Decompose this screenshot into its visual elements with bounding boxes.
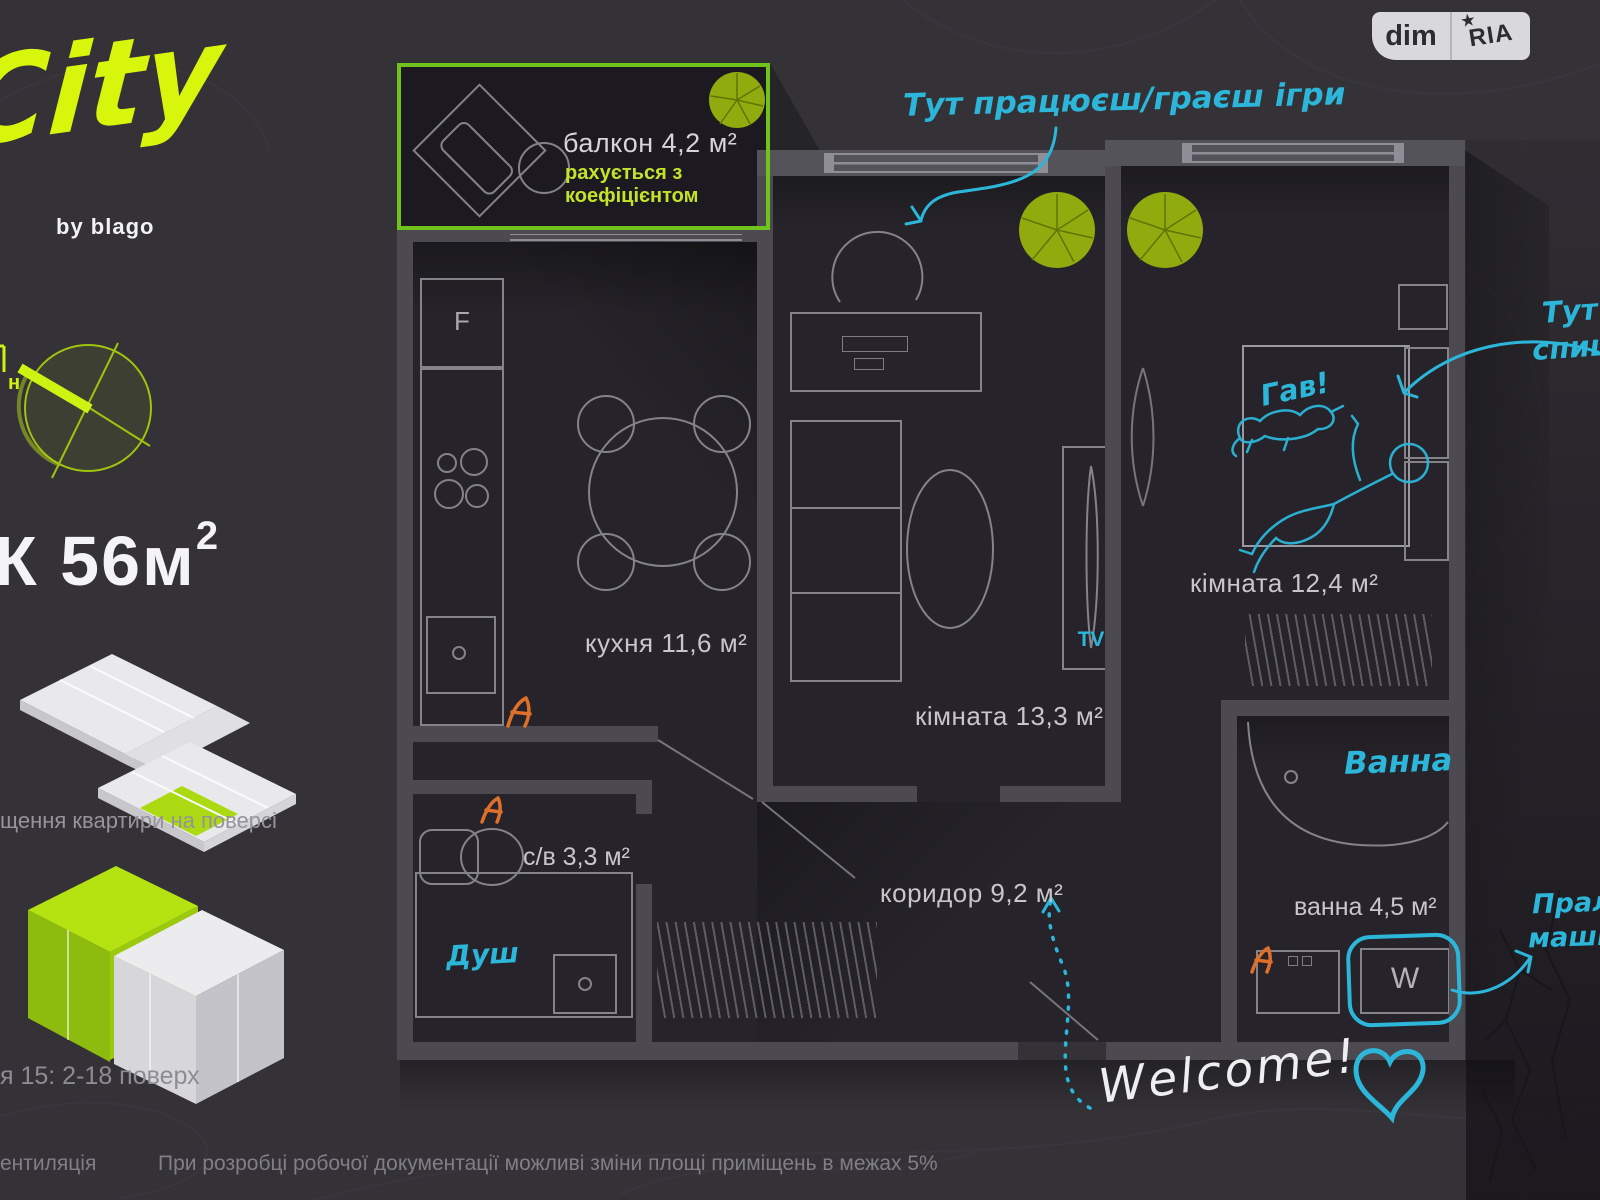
note-sleep-line2: спиш — [1531, 327, 1600, 367]
ventilation-marker — [482, 698, 1271, 972]
compass-north-label: н — [8, 372, 20, 395]
compass-icon — [0, 343, 151, 478]
note-washer-line2: маши — [1527, 920, 1600, 954]
plan-overlay — [0, 0, 1600, 1200]
toilet-bowl — [461, 829, 523, 885]
room-label-room1: кімната 13,3 м² — [915, 701, 1103, 732]
burner — [461, 449, 487, 475]
room-label-bath: ванна 4,5 м² — [1294, 893, 1437, 922]
balcony-label: балкон 4,2 м² — [563, 128, 737, 159]
room1-door — [762, 802, 855, 878]
dim-ria-badge: dim RIA ★ — [1372, 12, 1530, 60]
brand-byline: by blago — [56, 214, 154, 240]
room-label-kitchen: кухня 11,6 м² — [585, 628, 747, 659]
tub-drain — [1285, 771, 1297, 783]
note-bath: Ванна — [1343, 742, 1453, 782]
heart-icon — [1356, 1051, 1423, 1118]
room-label-wc: с/в 3,3 м² — [523, 843, 630, 872]
note-washer-line1: Прал — [1531, 887, 1600, 921]
tv-lens — [1087, 466, 1098, 648]
disclaimer-text: При розробці робочої документації можлив… — [158, 1152, 938, 1176]
dim-logo: dim — [1372, 20, 1450, 53]
arrow-washer — [1452, 958, 1530, 993]
ria-star-icon: ★ — [1460, 10, 1477, 30]
tv-label: TV — [1062, 628, 1120, 652]
floorplate-caption: щення квартири на поверсі — [0, 808, 277, 834]
room-label-room2: кімната 12,4 м² — [1190, 568, 1378, 599]
burner — [466, 485, 488, 507]
rug — [907, 470, 993, 628]
dog-person-sketch — [1233, 406, 1428, 572]
entrance-door — [1030, 982, 1098, 1040]
bedroom-door — [1132, 368, 1154, 506]
note-shower: Душ — [445, 936, 520, 973]
burner — [435, 480, 463, 508]
washer-label: W — [1360, 962, 1450, 996]
balcony-note: рахується з коефіцієнтом — [565, 162, 698, 208]
kitchen-door — [658, 740, 753, 799]
bathtub — [1248, 722, 1448, 846]
floorplan-page: City by blago dim RIA ★ н К 56м2 щення к… — [0, 0, 1600, 1200]
burner — [438, 454, 456, 472]
ventilation-caption: ентиляція — [0, 1152, 96, 1176]
room-label-corridor: коридор 9,2 м² — [880, 878, 1063, 909]
note-sleep-line1: Тут — [1541, 292, 1599, 330]
fridge-label: F — [420, 306, 504, 337]
ria-logo: RIA ★ — [1450, 16, 1531, 56]
apartment-area-title: К 56м2 — [0, 514, 220, 601]
section-caption: я 15: 2-18 поверх — [0, 1062, 200, 1091]
desk-chair — [832, 232, 922, 302]
